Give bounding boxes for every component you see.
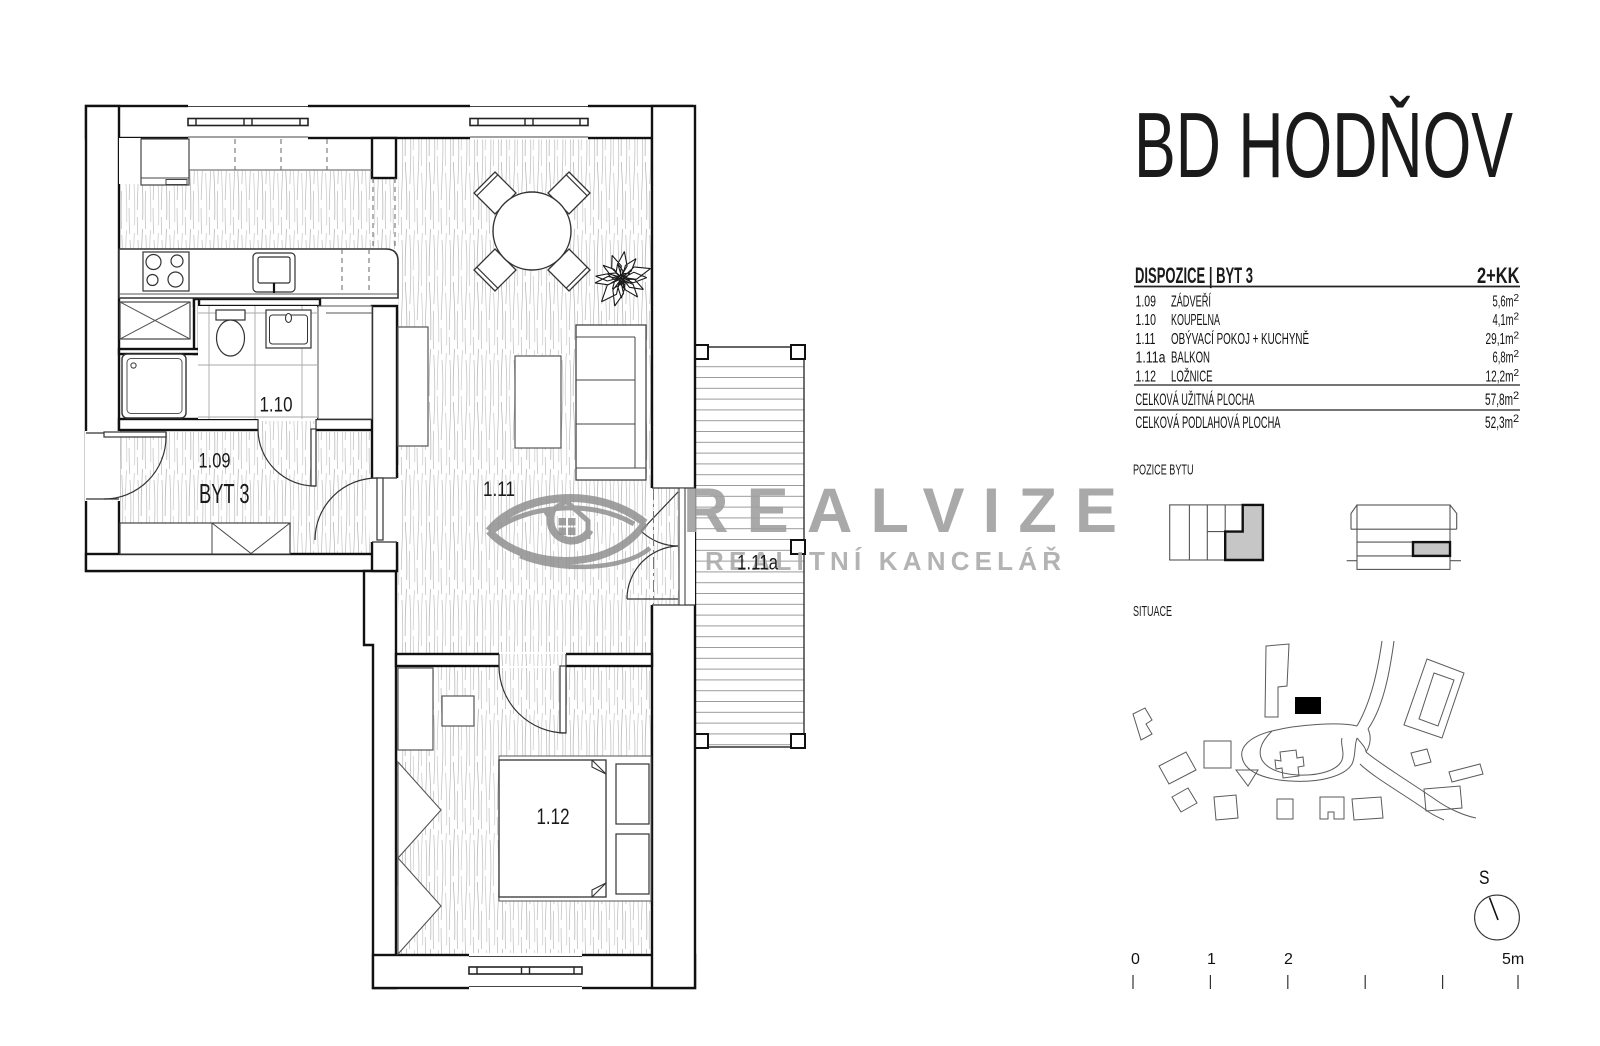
svg-text:S: S (1479, 868, 1490, 889)
svg-text:1.10: 1.10 (260, 394, 293, 417)
svg-text:1.11: 1.11 (1136, 331, 1156, 348)
svg-text:52,3m: 52,3m (1485, 413, 1513, 432)
svg-text:DISPOZICE | BYT 3: DISPOZICE | BYT 3 (1135, 263, 1253, 288)
svg-text:12,2m: 12,2m (1486, 368, 1514, 385)
svg-text:BD HODŇOV: BD HODŇOV (1134, 93, 1513, 197)
svg-text:OBÝVACÍ POKOJ + KUCHYNĚ: OBÝVACÍ POKOJ + KUCHYNĚ (1171, 331, 1309, 348)
svg-text:2+KK: 2+KK (1477, 263, 1520, 288)
svg-text:CELKOVÁ PODLAHOVÁ PLOCHA: CELKOVÁ PODLAHOVÁ PLOCHA (1136, 413, 1281, 432)
svg-text:2: 2 (1514, 349, 1520, 360)
svg-text:1.11a: 1.11a (1136, 350, 1166, 367)
svg-text:2: 2 (1514, 312, 1520, 323)
svg-text:1.12: 1.12 (1136, 368, 1157, 385)
svg-text:SITUACE: SITUACE (1133, 603, 1172, 620)
svg-text:2: 2 (1514, 368, 1520, 379)
svg-text:1.09: 1.09 (199, 450, 231, 473)
svg-text:6,8m: 6,8m (1493, 350, 1514, 367)
svg-text:REALVIZE: REALVIZE (683, 476, 1117, 546)
svg-text:1.11a: 1.11a (737, 552, 778, 575)
svg-text:0: 0 (1131, 951, 1140, 968)
svg-text:1.11: 1.11 (483, 478, 515, 501)
svg-text:2: 2 (1514, 293, 1520, 304)
svg-text:LOŽNICE: LOŽNICE (1171, 368, 1213, 385)
svg-text:CELKOVÁ UŽITNÁ PLOCHA: CELKOVÁ UŽITNÁ PLOCHA (1136, 390, 1255, 409)
svg-text:29,1m: 29,1m (1486, 331, 1514, 348)
svg-text:2: 2 (1284, 951, 1293, 968)
svg-text:1.10: 1.10 (1136, 312, 1157, 329)
svg-text:POZICE BYTU: POZICE BYTU (1133, 462, 1194, 479)
svg-text:2: 2 (1513, 413, 1519, 425)
svg-text:1: 1 (1207, 951, 1216, 968)
svg-text:2: 2 (1514, 330, 1520, 341)
svg-text:5m: 5m (1502, 951, 1524, 968)
svg-text:KOUPELNA: KOUPELNA (1171, 312, 1220, 329)
svg-text:4,1m: 4,1m (1493, 312, 1514, 329)
svg-text:ZÁDVEŘÍ: ZÁDVEŘÍ (1171, 294, 1211, 311)
svg-text:BALKON: BALKON (1171, 350, 1210, 367)
svg-text:1.09: 1.09 (1136, 294, 1157, 311)
svg-text:2: 2 (1513, 390, 1519, 402)
svg-text:57,8m: 57,8m (1485, 390, 1513, 409)
svg-text:5,6m: 5,6m (1493, 294, 1514, 311)
svg-text:1.12: 1.12 (537, 804, 570, 829)
svg-text:BYT 3: BYT 3 (199, 478, 250, 509)
